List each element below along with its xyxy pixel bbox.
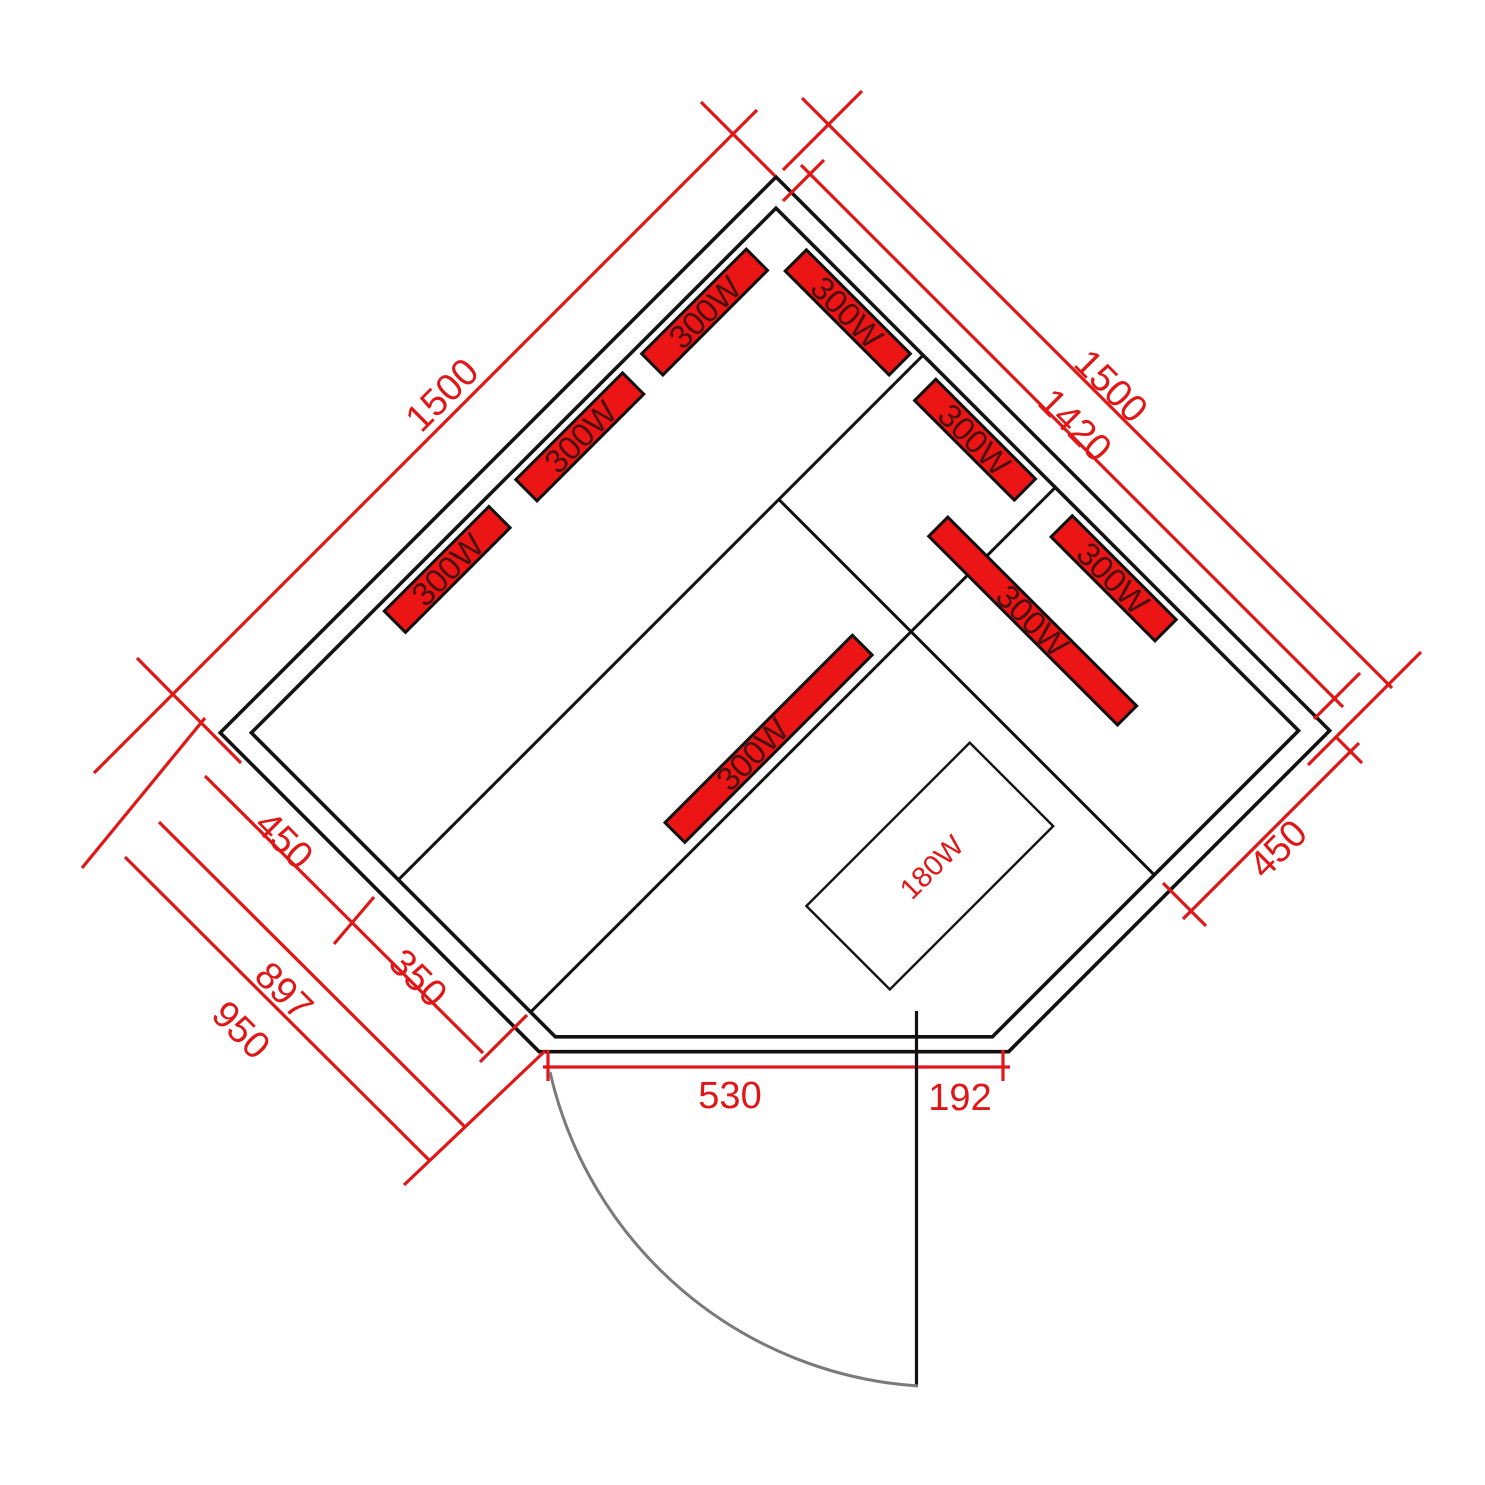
svg-text:450: 450: [1241, 812, 1316, 887]
svg-text:1500: 1500: [398, 351, 487, 440]
svg-text:350: 350: [380, 941, 455, 1016]
svg-text:950: 950: [203, 993, 278, 1068]
svg-text:192: 192: [928, 1077, 991, 1119]
svg-text:450: 450: [246, 803, 321, 878]
svg-text:530: 530: [698, 1075, 761, 1117]
svg-text:180W: 180W: [894, 829, 971, 906]
